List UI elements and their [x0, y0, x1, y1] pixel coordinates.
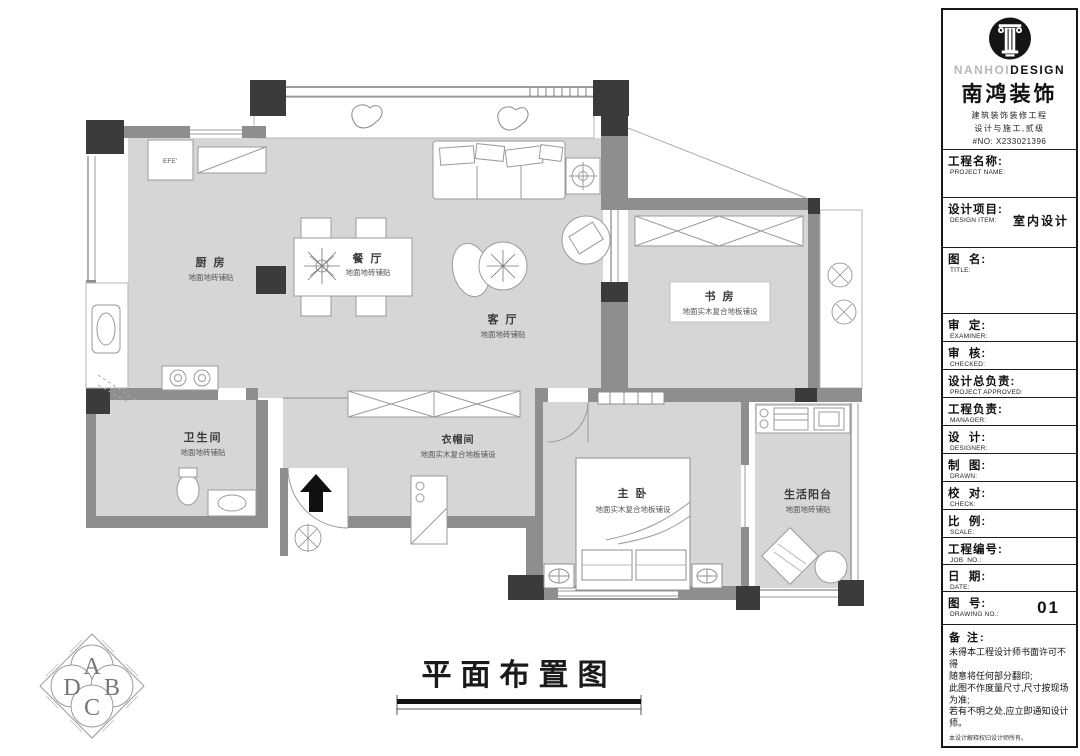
drawing-title-area: 平面布置图 [388, 650, 650, 723]
room-label-balcony: 生活阳台 [784, 487, 832, 501]
field-scale: 比 例: SCALE: [943, 510, 1076, 538]
field-check: 校 对: CHECK: [943, 482, 1076, 510]
brand-latin-name: NANHOIDESIGN [954, 63, 1065, 77]
index-letter-a: A [83, 654, 101, 680]
room-label-master: 主 卧 [617, 486, 648, 500]
dining-plant [304, 248, 340, 284]
room-finish-cloakroom: 地面实木复合地板铺设 [421, 449, 496, 459]
field-project-approved: 设计总负责: PROJECT APPROVED: [943, 370, 1076, 398]
field-designer: 设 计: DESIGNER: [943, 426, 1076, 454]
column-logo-icon [981, 16, 1039, 61]
field-job-no: 工程编号: JOB NO.: [943, 538, 1076, 565]
brand-section: NANHOIDESIGN 南鸿装饰 建筑装饰装修工程 设计与施工,贰级 #NO:… [943, 10, 1076, 150]
title-underline [389, 694, 649, 718]
title-block: NANHOIDESIGN 南鸿装饰 建筑装饰装修工程 设计与施工,贰级 #NO:… [941, 8, 1078, 748]
floor-plan: EFE' [58, 70, 918, 630]
drawing-sheet: EFE' [0, 0, 1080, 756]
field-project-name: 工程名称: PROJECT NAME: [943, 150, 1076, 198]
field-design-item: 设计项目: DESIGN ITEM: 室内设计 [943, 198, 1076, 248]
design-item-value: 室内设计 [1013, 212, 1069, 229]
field-checked: 审 核: CHECKED: [943, 342, 1076, 370]
drawing-title: 平面布置图 [388, 650, 650, 694]
index-letter-d: D [63, 675, 80, 701]
room-finish-study: 地面实木复合地板铺设 [683, 306, 758, 316]
room-label-cloakroom: 衣帽间 [442, 433, 475, 446]
brand-cn-name: 南鸿装饰 [962, 78, 1058, 108]
room-finish-bathroom: 地面地砖铺贴 [181, 447, 226, 457]
elevation-index-symbol: A D B C [33, 626, 153, 748]
room-label-dining: 餐 厅 [351, 251, 383, 265]
room-label-kitchen: 厨 房 [195, 255, 226, 269]
field-examiner: 审 定: EXAMINER: [943, 314, 1076, 342]
coffee-table-plant [487, 250, 519, 282]
brand-subtitle-2: 设计与施工,贰级 [974, 123, 1044, 134]
field-title: 图 名: TITLE: [943, 248, 1076, 314]
field-drawn: 制 图: DRAWN: [943, 454, 1076, 482]
room-label-living: 客 厅 [486, 312, 518, 326]
field-manager: 工程负责: MANAGER: [943, 398, 1076, 426]
room-finish-living: 地面地砖铺贴 [481, 329, 526, 339]
top-balcony [254, 96, 594, 138]
cabinet-label: EFE' [163, 158, 177, 165]
drawing-no-value: 01 [1037, 598, 1060, 618]
brand-subtitle-1: 建筑装饰装修工程 [972, 110, 1048, 121]
notes-section: 备 注: 未得本工程设计师书面许可不得 随意将任何部分翻印; 此图不作度量尺寸,… [943, 625, 1076, 746]
index-letter-c: C [84, 695, 100, 721]
field-date: 日 期: DATE: [943, 565, 1076, 592]
entry [288, 468, 348, 556]
room-finish-master: 地面实木复合地板铺设 [596, 504, 671, 514]
room-finish-balcony: 地面地砖铺贴 [786, 504, 831, 514]
index-letter-b: B [104, 675, 120, 701]
brand-cert-no: #NO: X233021396 [973, 137, 1047, 146]
room-label-bathroom: 卫生间 [184, 430, 223, 444]
field-drawing-no: 图 号: DRAWING NO.: 01 [943, 592, 1076, 625]
room-label-study: 书 房 [704, 289, 735, 303]
room-finish-kitchen: 地面地砖铺贴 [189, 272, 234, 282]
room-finish-dining: 地面地砖铺贴 [346, 267, 391, 277]
